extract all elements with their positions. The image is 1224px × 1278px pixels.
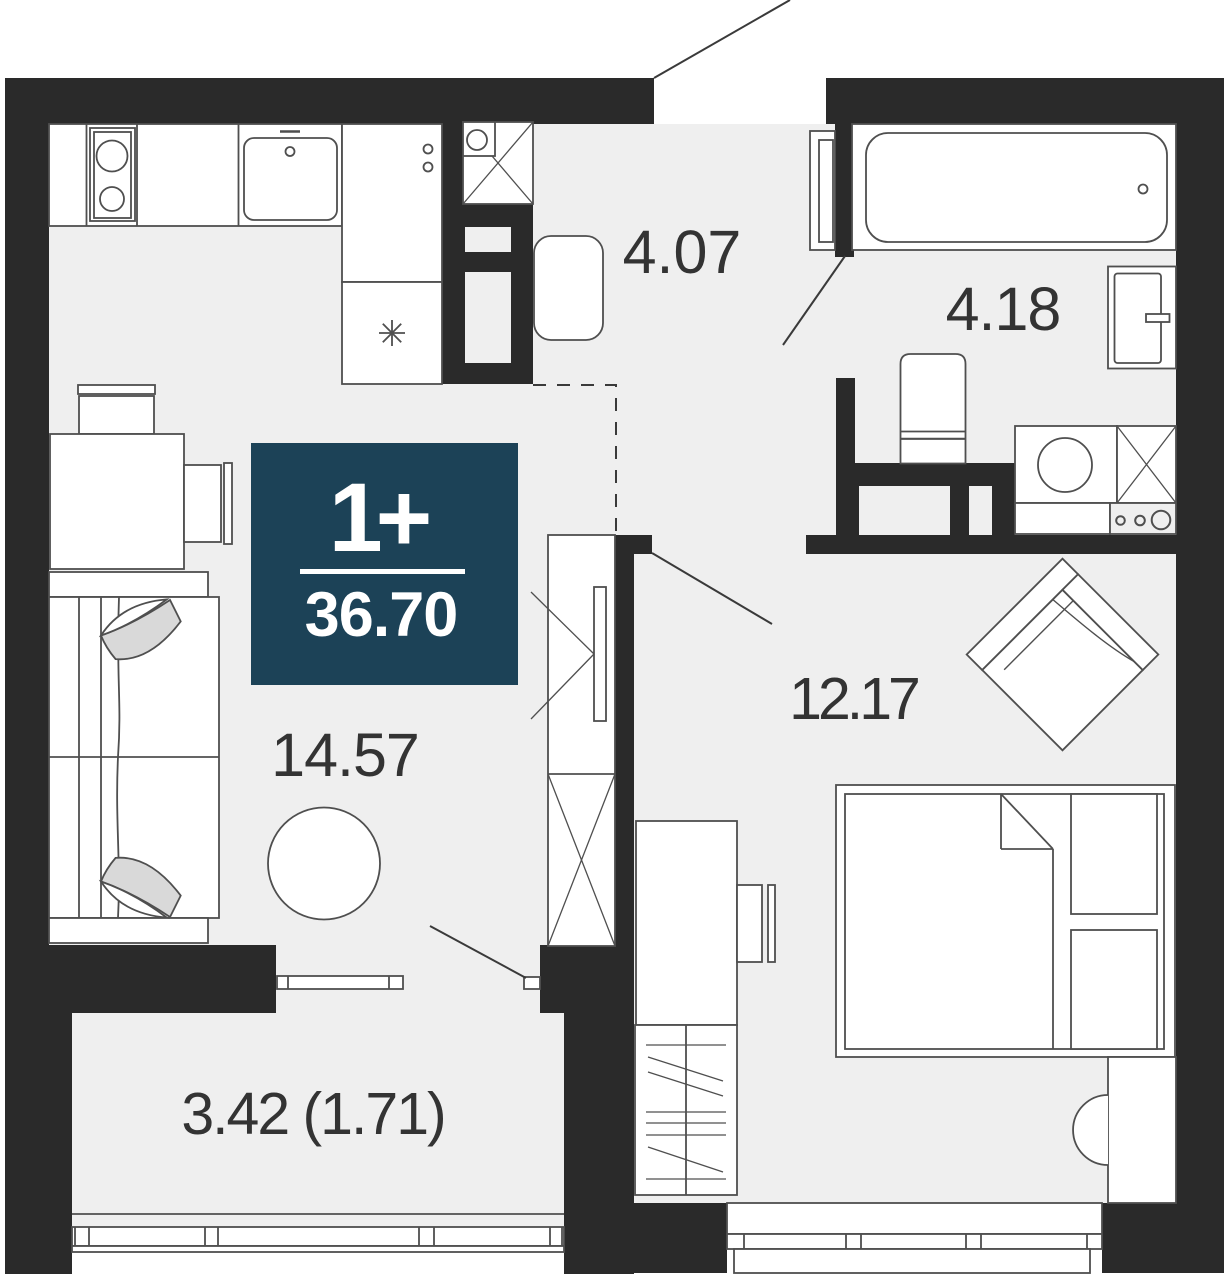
svg-text:14.57: 14.57 (271, 721, 419, 789)
svg-text:4.18: 4.18 (946, 275, 1061, 343)
svg-text:3.42 (1.71): 3.42 (1.71) (181, 1081, 444, 1147)
svg-text:4.07: 4.07 (623, 218, 742, 286)
svg-text:36.70: 36.70 (305, 580, 458, 650)
svg-text:1+: 1+ (329, 463, 429, 572)
svg-text:12.17: 12.17 (789, 666, 918, 732)
